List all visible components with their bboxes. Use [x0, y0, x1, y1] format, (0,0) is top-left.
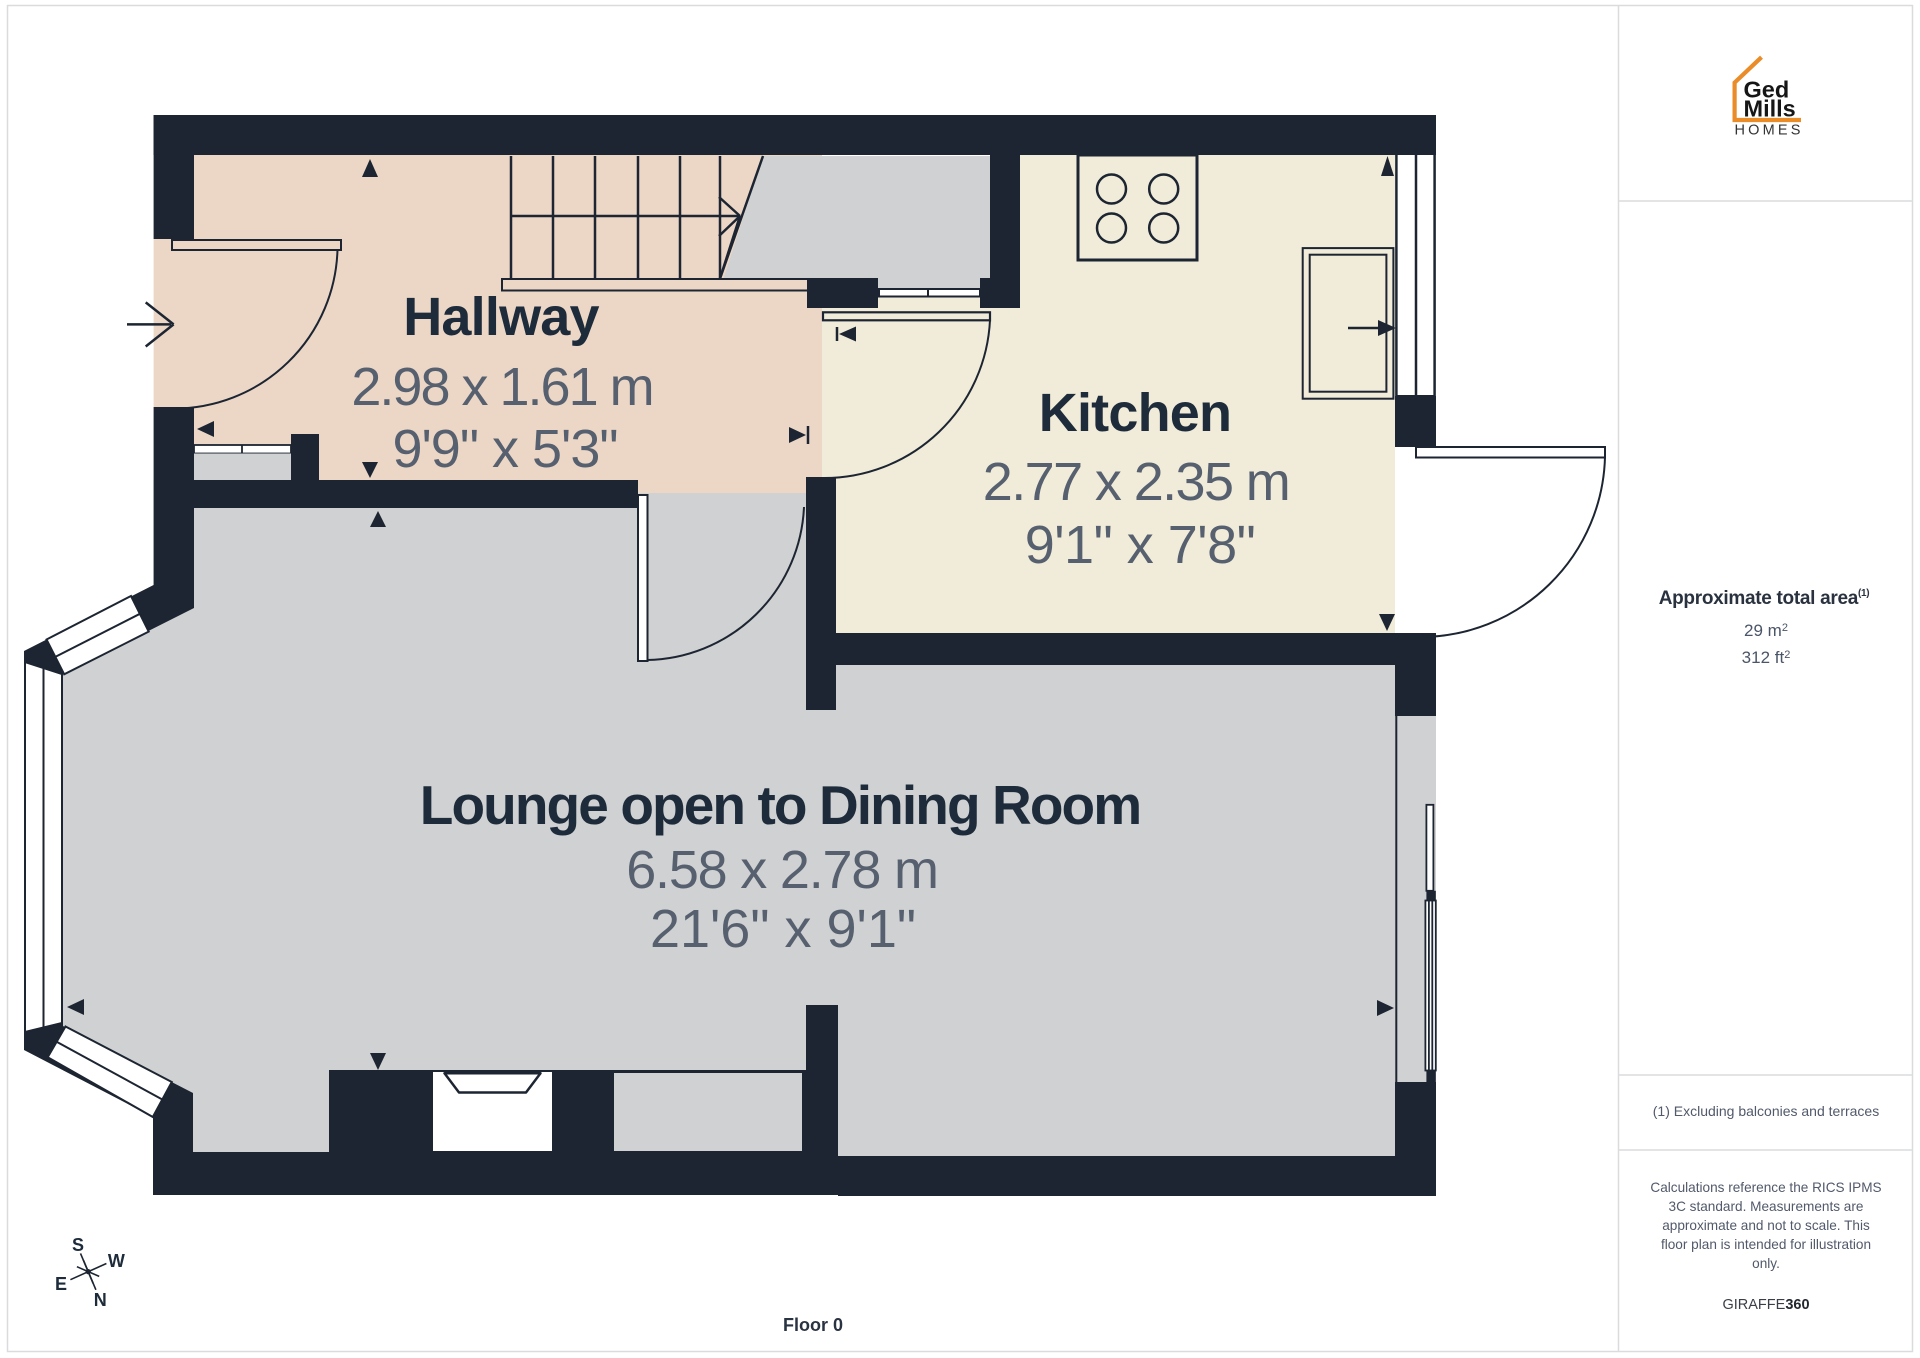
svg-text:GIRAFFE360: GIRAFFE360 [1722, 1297, 1809, 1313]
svg-text:Approximate total area(1): Approximate total area(1) [1659, 588, 1870, 609]
svg-text:2.77 x 2.35 m: 2.77 x 2.35 m [983, 452, 1289, 512]
svg-text:Kitchen: Kitchen [1039, 383, 1231, 443]
svg-text:312 ft2: 312 ft2 [1742, 648, 1791, 667]
svg-text:Hallway: Hallway [403, 287, 599, 347]
svg-text:Floor 0: Floor 0 [783, 1315, 843, 1335]
svg-text:W: W [108, 1251, 125, 1271]
svg-text:3C standard. Measurements are: 3C standard. Measurements are [1669, 1199, 1864, 1214]
svg-text:floor plan is intended for ill: floor plan is intended for illustration [1661, 1237, 1871, 1252]
svg-text:approximate and not to scale.: approximate and not to scale. This [1662, 1218, 1870, 1233]
svg-text:HOMES: HOMES [1735, 123, 1804, 139]
svg-text:9'9" x 5'3": 9'9" x 5'3" [392, 419, 617, 479]
svg-text:Calculations reference the RIC: Calculations reference the RICS IPMS [1650, 1180, 1881, 1195]
svg-text:(1) Excluding balconies and te: (1) Excluding balconies and terraces [1653, 1103, 1879, 1119]
svg-text:E: E [55, 1274, 67, 1294]
svg-text:Lounge open to Dining Room: Lounge open to Dining Room [420, 774, 1140, 836]
svg-text:9'1" x 7'8": 9'1" x 7'8" [1025, 515, 1256, 575]
svg-text:21'6" x 9'1": 21'6" x 9'1" [650, 899, 916, 959]
svg-text:only.: only. [1752, 1256, 1780, 1271]
svg-text:6.58 x 2.78 m: 6.58 x 2.78 m [626, 840, 938, 900]
svg-text:2.98 x 1.61 m: 2.98 x 1.61 m [351, 357, 652, 417]
svg-text:Mills: Mills [1744, 95, 1796, 121]
svg-text:N: N [94, 1290, 107, 1310]
svg-text:S: S [72, 1235, 84, 1255]
svg-text:29 m2: 29 m2 [1744, 621, 1788, 640]
